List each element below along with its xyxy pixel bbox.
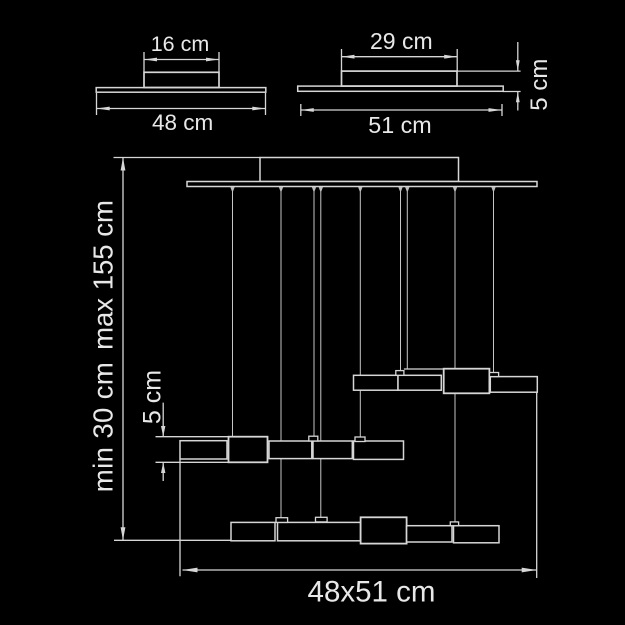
svg-text:29 cm: 29 cm	[370, 28, 433, 54]
svg-text:48 cm: 48 cm	[152, 110, 213, 135]
svg-text:16 cm: 16 cm	[151, 32, 210, 56]
svg-text:51 cm: 51 cm	[368, 112, 431, 138]
svg-text:min 30 cm: min 30 cm	[88, 362, 119, 492]
svg-text:5 cm: 5 cm	[526, 59, 553, 111]
svg-text:5 cm: 5 cm	[139, 370, 167, 424]
svg-text:48x51 cm: 48x51 cm	[308, 576, 436, 609]
svg-text:max 155 cm: max 155 cm	[88, 200, 119, 350]
